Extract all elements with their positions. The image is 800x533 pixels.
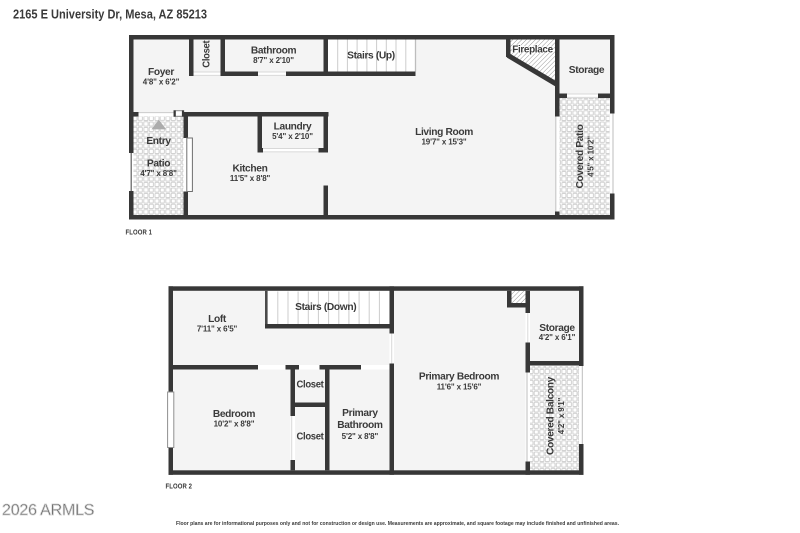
svg-text:Closet: Closet	[297, 432, 325, 443]
svg-text:Entry: Entry	[146, 136, 171, 147]
svg-text:2165 E University Dr, Mesa, AZ: 2165 E University Dr, Mesa, AZ 85213	[13, 7, 207, 22]
svg-text:5'2" x 8'8": 5'2" x 8'8"	[342, 432, 379, 441]
svg-text:2026 ARMLS: 2026 ARMLS	[2, 502, 94, 519]
svg-text:10'2" x 8'8": 10'2" x 8'8"	[214, 419, 255, 428]
svg-text:4'2" x 9'1": 4'2" x 9'1"	[557, 397, 566, 434]
svg-text:Primary Bedroom: Primary Bedroom	[419, 371, 500, 382]
svg-text:Stairs (Down): Stairs (Down)	[295, 302, 356, 313]
svg-text:FLOOR 2: FLOOR 2	[166, 482, 193, 491]
svg-text:Storage: Storage	[569, 65, 605, 76]
svg-text:4'8" x 6'2": 4'8" x 6'2"	[143, 78, 180, 87]
svg-text:5'4" x 2'10": 5'4" x 2'10"	[272, 132, 313, 141]
svg-text:Closet: Closet	[297, 380, 325, 391]
svg-text:Primary: Primary	[342, 408, 378, 419]
svg-text:8'7" x 2'10": 8'7" x 2'10"	[253, 56, 294, 65]
svg-text:4'5" x 10'2": 4'5" x 10'2"	[587, 136, 596, 177]
svg-text:Stairs (Up): Stairs (Up)	[347, 51, 395, 62]
svg-text:Bathroom: Bathroom	[337, 420, 383, 431]
svg-text:Fireplace: Fireplace	[512, 45, 553, 56]
svg-text:11'6" x 15'6": 11'6" x 15'6"	[437, 383, 482, 392]
svg-text:Floor plans are for informatio: Floor plans are for informational purpos…	[176, 521, 619, 527]
svg-text:Closet: Closet	[202, 40, 213, 68]
svg-text:Covered Patio: Covered Patio	[575, 124, 586, 188]
svg-text:19'7" x 15'3": 19'7" x 15'3"	[421, 137, 466, 146]
svg-text:Covered Balcony: Covered Balcony	[546, 376, 557, 455]
svg-text:FLOOR 1: FLOOR 1	[126, 228, 153, 237]
svg-text:7'11" x 6'5": 7'11" x 6'5"	[197, 324, 238, 333]
svg-text:4'7" x 8'8": 4'7" x 8'8"	[140, 169, 177, 178]
svg-text:4'2" x 6'1": 4'2" x 6'1"	[539, 333, 576, 342]
svg-text:Foyer: Foyer	[148, 67, 174, 78]
svg-text:11'5" x 8'8": 11'5" x 8'8"	[230, 174, 271, 183]
